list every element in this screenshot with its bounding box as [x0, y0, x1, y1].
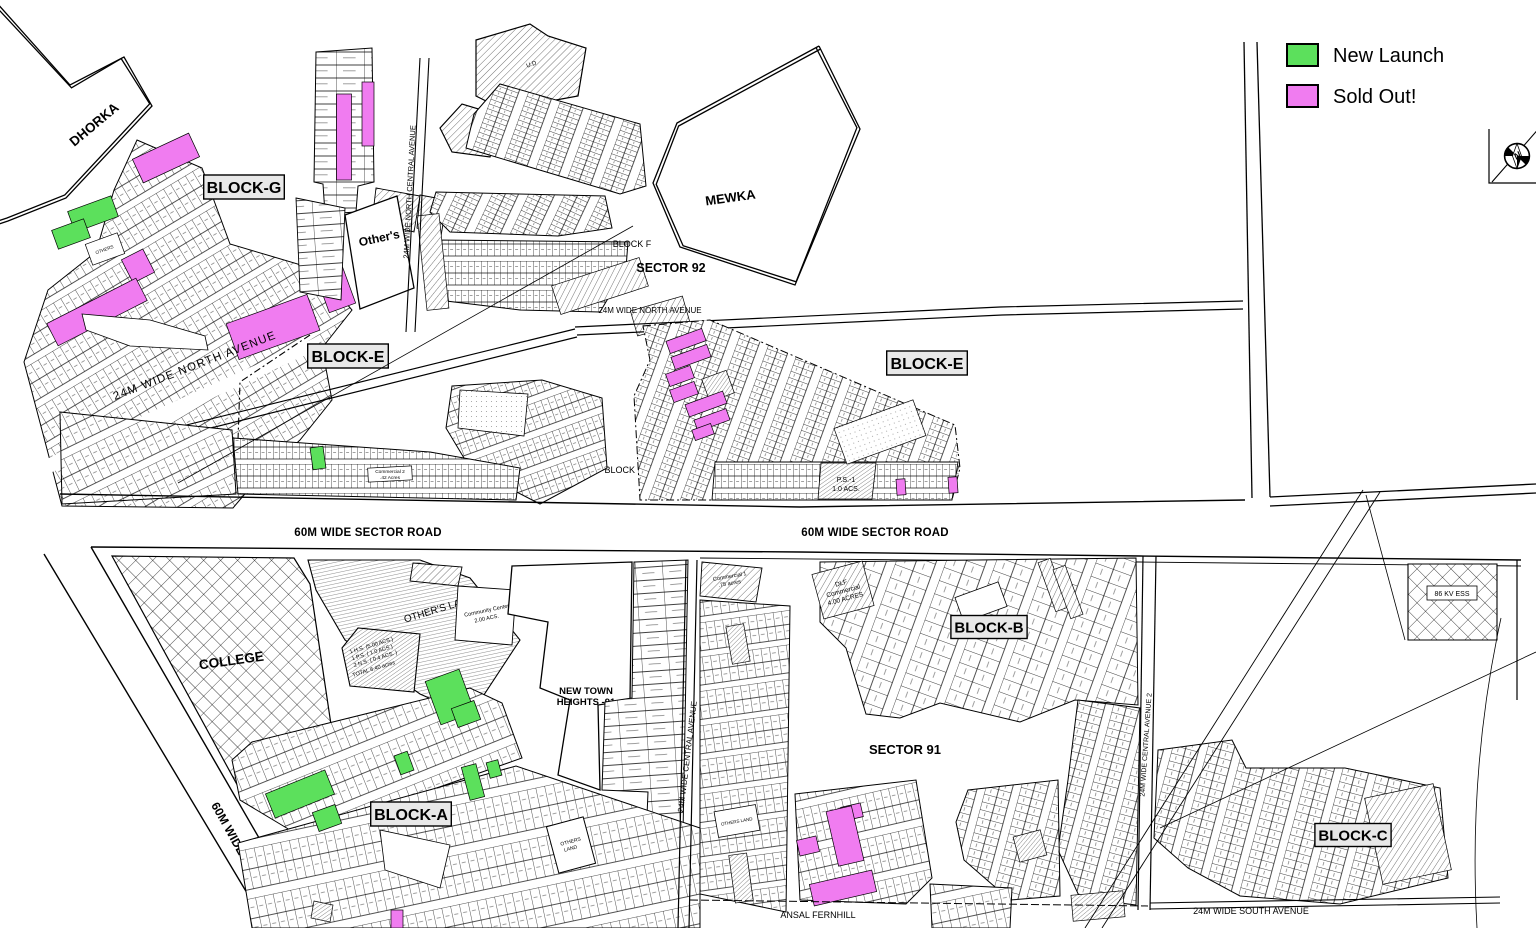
svg-text:1.0 ACS.: 1.0 ACS.	[832, 486, 860, 493]
svg-text:New Launch: New Launch	[1333, 45, 1444, 67]
svg-text:ANSAL FERNHILL: ANSAL FERNHILL	[780, 910, 855, 920]
svg-text:24M WIDE SOUTH AVENUE: 24M WIDE SOUTH AVENUE	[1193, 906, 1309, 916]
svg-text:BLOCK F: BLOCK F	[613, 239, 652, 249]
svg-text:Sold Out!: Sold Out!	[1333, 86, 1416, 108]
svg-text:NEW TOWN: NEW TOWN	[559, 686, 613, 697]
svg-text:BLOCK-E: BLOCK-E	[891, 356, 964, 373]
svg-text:Commercial 2: Commercial 2	[375, 469, 405, 475]
svg-text:BLOCK-B: BLOCK-B	[954, 619, 1023, 636]
svg-text:BLOCK-G: BLOCK-G	[207, 180, 282, 197]
svg-text:60M WIDE SECTOR ROAD: 60M WIDE SECTOR ROAD	[801, 527, 949, 539]
svg-text:BLOCK-C: BLOCK-C	[1318, 827, 1387, 844]
svg-text:.42 Acres: .42 Acres	[380, 475, 401, 481]
svg-text:BLOCK-E: BLOCK-E	[312, 349, 385, 366]
svg-text:SECTOR 92: SECTOR 92	[636, 261, 705, 275]
svg-text:24M WIDE NORTH AVENUE: 24M WIDE NORTH AVENUE	[598, 306, 701, 315]
svg-text:86 KV ESS: 86 KV ESS	[1434, 591, 1469, 598]
svg-text:SECTOR 91: SECTOR 91	[869, 742, 941, 757]
svg-text:BLOCK-A: BLOCK-A	[374, 807, 448, 824]
svg-text:60M WIDE SECTOR ROAD: 60M WIDE SECTOR ROAD	[294, 527, 442, 539]
svg-text:P.S.-1: P.S.-1	[837, 477, 856, 484]
